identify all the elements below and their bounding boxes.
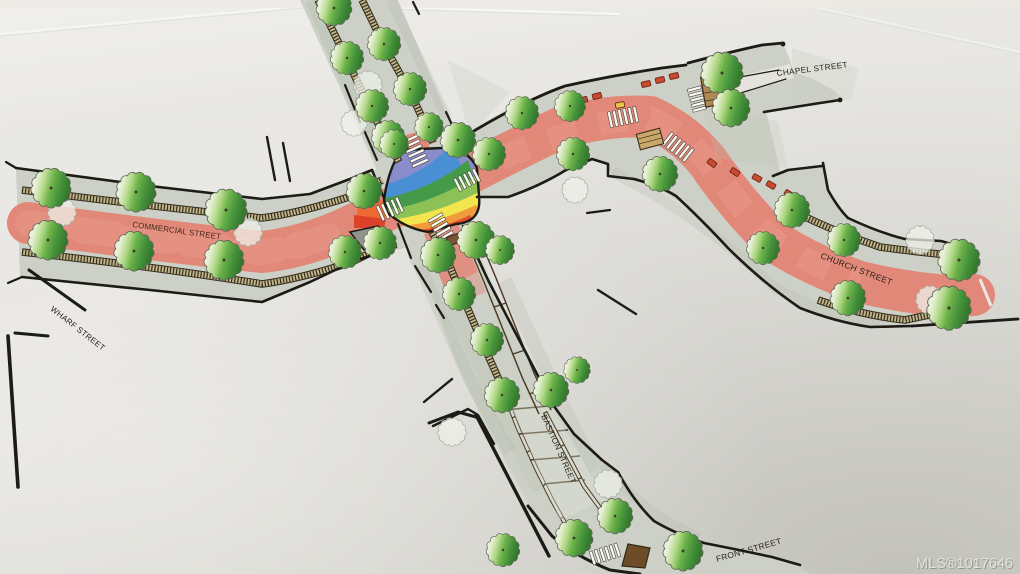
svg-text:MLS®1017646: MLS®1017646: [916, 556, 1013, 572]
